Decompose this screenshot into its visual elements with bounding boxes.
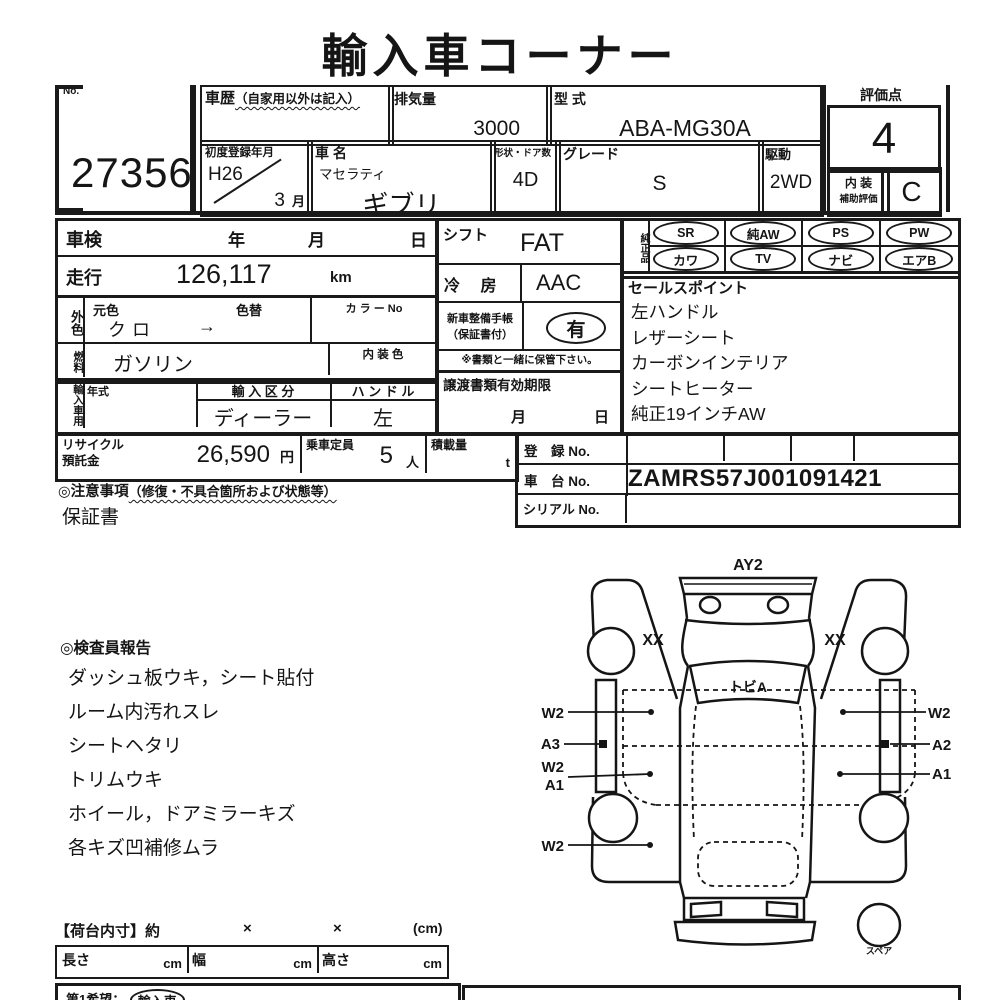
recycle-cell: リサイクル 預託金 26,590 円 [58, 435, 300, 473]
history-cell: 車歴（自家用以外は記入） [200, 85, 394, 146]
shift-row: シフト FAT [438, 221, 621, 265]
rear-light-right [767, 902, 797, 917]
damage-dot [837, 771, 843, 777]
left-rear-wheel [589, 794, 637, 842]
damage-dot [647, 771, 653, 777]
sales-point-item: 左ハンドル [631, 300, 958, 326]
genuine-item-pw: PW [886, 221, 952, 245]
displacement-cell: 排気量 3000 [388, 85, 552, 146]
year-model-cell: 年式 [83, 381, 198, 427]
interior-color-cell: 内 装 色 [328, 344, 436, 375]
cargo-width-cell: 幅 cm [187, 947, 319, 973]
sales-point-item: 純正19インチAW [631, 402, 958, 428]
genuine-item: TV [726, 247, 804, 271]
cargo-width-unit: cm [293, 956, 312, 971]
interior-score-value: C [881, 167, 942, 217]
shape-doors-value: 4D [492, 169, 559, 192]
shaken-month: 月 [308, 226, 325, 251]
shaken-row: 車検 年 月 日 [58, 221, 436, 257]
import-label: 輸入車用 [58, 381, 85, 428]
genuine-parts-label: 純正品 [623, 221, 650, 272]
caution-line: ◎注意事項（修復・不具合箇所および状態等） [58, 480, 337, 501]
cargo-table: 長さ cm 幅 cm 高さ cm [55, 945, 449, 979]
capacity-value: 5 [380, 442, 393, 470]
diagram-front-label: AY2 [733, 557, 763, 574]
exterior-color-label: 外色 [58, 298, 85, 345]
genuine-item: エアB [881, 247, 959, 271]
reg-divider [790, 435, 792, 461]
genuine-item: PS [803, 221, 881, 247]
hood-left [682, 618, 688, 666]
car-name-cell: 車 名 マセラティ ギブリ [307, 140, 496, 217]
fender-left-label: XX [642, 632, 664, 649]
shaken-year: 年 [228, 226, 245, 251]
interior-label-1: 内 装 [830, 174, 887, 191]
drive-cell: 駆動 2WD [758, 140, 824, 217]
cargo-length-cell: 長さ cm [57, 947, 189, 973]
damage-dot [648, 709, 654, 715]
score-value: 4 [827, 105, 941, 173]
color-change-label: 色替 [236, 300, 262, 319]
trunk-right [806, 882, 810, 898]
spare-label: スペア [866, 946, 892, 956]
load-label: 積載量 [431, 436, 516, 453]
genuine-item-navi: ナビ [808, 247, 874, 271]
capacity-unit: 人 [406, 452, 419, 471]
cargo-width-label: 幅 [192, 952, 206, 968]
damage-square [881, 740, 889, 748]
chassis-no-value: ZAMRS57J001091421 [628, 465, 882, 493]
displacement-label: 排気量 [394, 89, 550, 109]
sales-points-label: セールスポイント [628, 277, 958, 298]
cargo-times-1: × [243, 920, 252, 937]
hood-label: トビA [729, 679, 767, 695]
genuine-parts-grid: SR 純AW PS PW カワ TV ナビ エアB [648, 221, 958, 270]
shaken-day: 日 [410, 226, 427, 251]
genuine-item: PW [881, 221, 959, 247]
service-book-value: 有 [546, 312, 606, 344]
cargo-height-unit: cm [423, 956, 442, 971]
cargo-header: 【荷台内寸】約 [55, 923, 160, 940]
serial-no-label: シリアル No. [518, 495, 627, 523]
fuel-value: ガソリン [113, 348, 193, 377]
transfer-day: 日 [594, 406, 609, 427]
inspector-report-header: ◎検査員報告 [60, 636, 151, 658]
left-damage-label: A3 [541, 736, 560, 753]
ac-value: AAC [536, 270, 581, 296]
color-no-label: カ ラ ー No [312, 300, 436, 316]
exterior-color-row: 外色 元色 色替 クロ → カ ラ ー No [58, 298, 436, 344]
year-model-label: 年式 [87, 383, 196, 399]
load-unit: t [506, 455, 510, 470]
shift-value: FAT [520, 229, 564, 258]
import-class-value: ディーラー [196, 402, 330, 431]
leader-line [568, 774, 650, 777]
model-code-label: 型 式 [554, 89, 822, 109]
ac-divider [520, 265, 522, 301]
cabin-dashed-right [800, 706, 804, 840]
recycle-value: 26,590 [197, 441, 270, 469]
import-table: 輸入車用 年式 輸 入 区 分 ディーラー ハ ン ド ル 左 [55, 378, 439, 436]
service-book-label-cell: 新車整備手帳 （保証書付） [438, 303, 524, 349]
genuine-item: 純AW [726, 221, 804, 247]
left-damage-label: W2 [542, 705, 565, 722]
color-no-cell: カ ラ ー No [310, 298, 436, 342]
mileage-row: 走行 126,117 km [58, 257, 436, 298]
right-rear-wheel [860, 794, 908, 842]
genuine-item-jun-aw: 純AW [730, 221, 796, 245]
rear-bumper [675, 922, 815, 945]
displacement-value: 3000 [473, 117, 520, 141]
cargo-length-unit: cm [163, 956, 182, 971]
wish-label: 第1希望： [66, 989, 125, 1000]
first-registration-cell: 初度登録年月 H26 3 月 [200, 140, 313, 217]
drive-value: 2WD [760, 172, 822, 194]
import-class-label: 輸 入 区 分 [196, 381, 330, 401]
fuel-label: 燃料 [58, 344, 85, 377]
color-change-value: → [198, 316, 216, 337]
model-code-cell: 型 式 ABA-MG30A [546, 85, 824, 146]
score-box: 評価点 4 内 装 補助評価 C [820, 85, 950, 212]
lot-number-value: 27356 [71, 149, 193, 197]
first-registration-year: H26 [208, 164, 243, 186]
grade-label: グレード [563, 144, 762, 164]
vehicle-diagram: AY2 XX XX トビA W2 A3 W2 A1 W2 W2 A2 A1 スペ… [528, 548, 970, 966]
trunk-left [680, 882, 684, 898]
mileage-unit: km [330, 269, 352, 286]
fuel-row: 燃料 ガソリン 内 装 色 [58, 344, 436, 375]
left-damage-label: A1 [545, 777, 564, 794]
orig-color-value: クロ [108, 316, 156, 342]
cargo-times-2: × [333, 920, 342, 937]
warranty-text: 保証書 [62, 502, 119, 529]
cargo-height-label: 高さ [322, 952, 350, 968]
front-panel-right [809, 594, 812, 618]
service-book-label-2: （保証書付） [438, 326, 522, 342]
inspector-report-item: トリムウキ [68, 764, 314, 798]
inspector-report-item: ダッシュ板ウキ，シート貼付 [68, 662, 314, 696]
first-registration-month-unit: 月 [292, 191, 305, 210]
rear-light-left [691, 902, 721, 917]
model-code-value: ABA-MG30A [548, 115, 822, 142]
interior-label-2: 補助評価 [830, 191, 887, 205]
front-panel-left [684, 594, 687, 618]
mileage-label: 走行 [66, 264, 102, 290]
cowl-line [685, 620, 811, 624]
bottom-right-box [462, 985, 961, 1000]
cargo-unit: (cm) [413, 920, 443, 936]
car-name-label: 車 名 [315, 143, 494, 163]
genuine-item: ナビ [803, 247, 881, 271]
fender-right-label: XX [824, 632, 846, 649]
sales-point-item: カーボンインテリア [631, 351, 958, 377]
section-divider [55, 211, 941, 215]
grade-value: S [557, 172, 762, 196]
genuine-item-ps: PS [808, 221, 874, 245]
grade-cell: グレード S [555, 140, 764, 217]
sales-point-item: シートヒーター [631, 377, 958, 403]
genuine-item-airbag: エアB [885, 247, 953, 271]
service-book-row: 新車整備手帳 （保証書付） 有 [438, 303, 621, 349]
lot-number-label: No. [63, 86, 79, 97]
inspector-report-item: シートヘタリ [68, 730, 314, 764]
transfer-month: 月 [511, 406, 526, 427]
reg-divider [723, 435, 725, 461]
damage-dot [647, 842, 653, 848]
caution-note: （修復・不具合箇所および状態等） [129, 484, 337, 499]
rear-window-dashed [698, 842, 798, 886]
chassis-no-label: 車 台 No. [518, 465, 628, 496]
genuine-item-sr: SR [653, 221, 719, 245]
registration-no-label: 登 録 No. [518, 435, 628, 466]
drive-label: 駆動 [765, 144, 822, 163]
car-model: ギブリ [309, 185, 494, 222]
page-title: 輸入車コーナー [0, 20, 1000, 86]
left-damage-label: W2 [542, 838, 565, 855]
inspector-report-item: ルーム内汚れスレ [68, 696, 314, 730]
body-left [680, 666, 688, 882]
genuine-item-tv: TV [730, 247, 796, 271]
sales-points-box: セールスポイント 左ハンドル レザーシート カーボンインテリア シートヒーター … [620, 271, 961, 436]
recycle-unit: 円 [280, 447, 294, 467]
service-book-label-1: 新車整備手帳 [438, 310, 522, 326]
capacity-cell: 乗車定員 5 人 [300, 435, 427, 473]
right-damage-label: A1 [932, 766, 951, 783]
front-bumper [680, 578, 816, 594]
history-label: 車歴 [205, 90, 235, 107]
car-maker: マセラティ [319, 163, 494, 183]
registration-no-row: 登 録 No. [518, 435, 958, 465]
ac-label: 冷 房 [444, 272, 504, 296]
hood-right [808, 618, 814, 666]
cargo-header-line: 【荷台内寸】約 × × (cm) [55, 920, 447, 941]
handle-cell: ハ ン ド ル 左 [330, 381, 436, 427]
sales-points-list: 左ハンドル レザーシート カーボンインテリア シートヒーター 純正19インチAW [631, 300, 958, 428]
inspector-report-item: ホイール，ドアミラーキズ [68, 798, 314, 832]
ac-row: 冷 房 AAC [438, 265, 621, 303]
left-front-wheel [588, 628, 634, 674]
damage-square [599, 740, 607, 748]
transfer-label: 譲渡書類有効期限 [443, 374, 621, 394]
recycle-box: リサイクル 預託金 26,590 円 乗車定員 5 人 積載量 t [55, 432, 519, 482]
load-cell: 積載量 t [425, 435, 516, 473]
genuine-item: カワ [648, 247, 726, 271]
handle-label: ハ ン ド ル [330, 381, 436, 401]
mileage-value: 126,117 [176, 259, 272, 290]
left-damage-label: W2 [542, 759, 565, 776]
right-rocker [880, 680, 900, 792]
shift-label: シフト [443, 224, 488, 245]
registration-table: 登 録 No. 車 台 No. ZAMRS57J001091421 シリアル N… [515, 432, 961, 528]
sales-point-item: レザーシート [631, 326, 958, 352]
right-damage-label: W2 [928, 705, 951, 722]
history-note: （自家用以外は記入） [235, 92, 360, 106]
auction-sheet: 輸入車コーナー No. 27356 車歴（自家用以外は記入） 排気量 3000 … [0, 0, 1000, 1000]
shape-doors-cell: 形状・ドア数 4D [490, 140, 561, 217]
capacity-label: 乗車定員 [306, 436, 427, 453]
cargo-height-cell: 高さ cm [317, 947, 447, 973]
interior-color-label: 内 装 色 [330, 346, 436, 362]
handle-value: 左 [330, 402, 436, 431]
right-front-wheel [862, 628, 908, 674]
body-right [808, 666, 815, 882]
import-class-cell: 輸 入 区 分 ディーラー [196, 381, 332, 427]
score-header: 評価点 [826, 85, 936, 105]
cabin-dashed-left [692, 706, 696, 840]
front-circle-right [768, 597, 788, 613]
wish-value: 輸入車 [130, 989, 185, 1000]
cargo-length-label: 長さ [62, 952, 90, 968]
genuine-item-kawa: カワ [653, 247, 719, 271]
inspector-report-list: ダッシュ板ウキ，シート貼付 ルーム内汚れスレ シートヘタリ トリムウキ ホイール… [68, 662, 314, 866]
equipment-table: シフト FAT 冷 房 AAC 新車整備手帳 （保証書付） 有 ※書類と一緒に保… [435, 218, 624, 436]
lot-number-box: No. 27356 [55, 85, 197, 212]
damage-dot [840, 709, 846, 715]
spare-tire [858, 904, 900, 946]
shape-doors-label: 形状・ドア数 [494, 145, 559, 159]
first-registration-month: 3 [274, 190, 285, 212]
divider-vertical [190, 85, 196, 212]
genuine-item: SR [648, 221, 726, 247]
chassis-no-row: 車 台 No. ZAMRS57J001091421 [518, 465, 958, 495]
wish-box: 第1希望： 輸入車 [55, 983, 461, 1000]
right-damage-label: A2 [932, 737, 951, 754]
transfer-row: 譲渡書類有効期限 月 日 [438, 370, 621, 433]
inspection-table: 車検 年 月 日 走行 126,117 km 外色 元色 色替 クロ → カ ラ… [55, 218, 439, 384]
shaken-label: 車検 [66, 226, 102, 252]
serial-no-row: シリアル No. [518, 495, 958, 519]
front-circle-left [700, 597, 720, 613]
genuine-parts-table: 純正品 SR 純AW PS PW カワ TV ナビ エアB [620, 218, 961, 279]
inspector-report-item: 各キズ凹補修ムラ [68, 832, 314, 866]
first-registration-label: 初度登録年月 [205, 144, 311, 160]
caution-prefix: ◎注意事項 [58, 484, 129, 500]
reg-divider [853, 435, 855, 461]
